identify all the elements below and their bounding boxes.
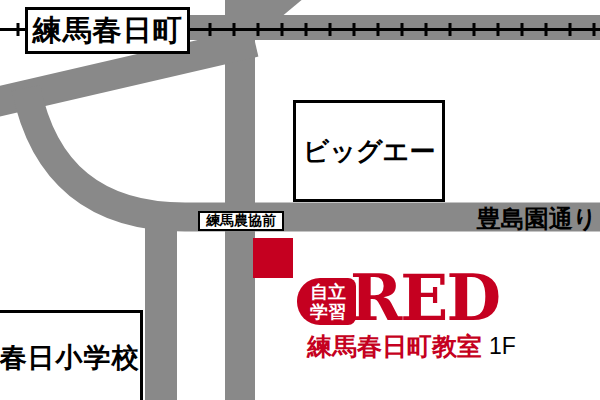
station-label: 練馬春日町 <box>33 11 183 51</box>
landmark-box-big-a: ビッグエー <box>293 100 445 202</box>
landmark-box-kasuga-elementary: 春日小学校 <box>0 310 143 400</box>
floor-label: 1F <box>489 333 516 360</box>
street-name-toshimaen-dori: 豊島園通り <box>455 206 597 232</box>
bus-stop-box-nerima-nokyo-mae: 練馬農協前 <box>198 211 284 231</box>
big-a-label: ビッグエー <box>303 134 435 169</box>
classroom-name-label: 練馬春日町教室 <box>307 330 482 363</box>
station-box-nerima-kasugacho: 練馬春日町 <box>25 7 190 54</box>
bus-stop-label: 練馬農協前 <box>206 212 276 230</box>
school-label: 春日小学校 <box>0 340 140 376</box>
badge-line1: 自立 <box>310 282 346 302</box>
brand-badge: 自立 学習 <box>297 278 356 325</box>
access-map: 練馬春日町 ビッグエー 練馬農協前 豊島園通り 春日小学校 自立 学習 RED … <box>0 0 600 400</box>
destination-marker-icon <box>253 238 293 278</box>
badge-line2: 学習 <box>310 302 346 322</box>
brand-logo-red: RED <box>350 267 499 330</box>
